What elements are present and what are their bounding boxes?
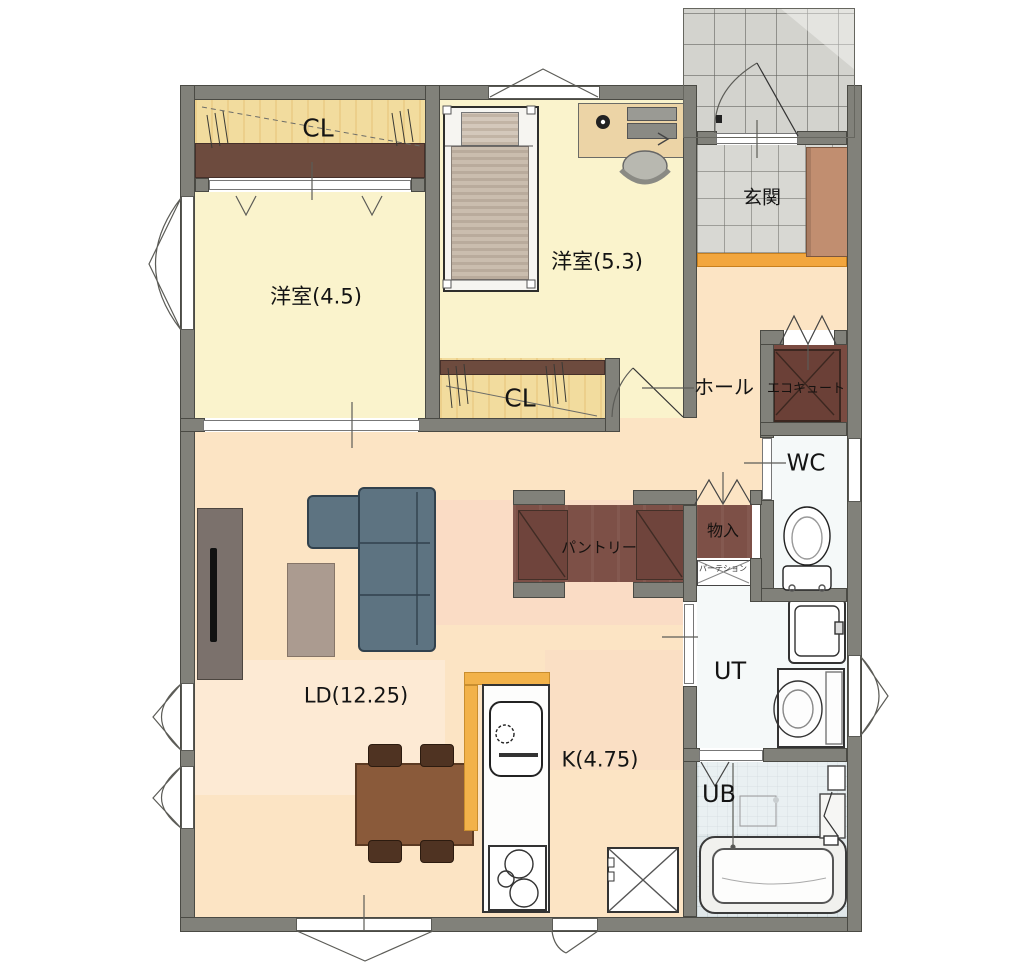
room-label-wc: WC [787,453,826,476]
room-label-storage: 物入 [707,523,739,539]
wall-bedroom-divider [425,85,440,432]
wall-ecocute-top-b [834,330,847,345]
hall-floor2 [697,330,763,418]
window-ld-bottom-swing [297,931,433,961]
window-wc-right [848,438,861,502]
window-ut-swing [861,657,888,735]
window-kitchen-bottom [552,918,598,931]
desk-keyboard [627,123,677,139]
room-label-ld: LD(12.25) [304,686,408,707]
wall-bedrooms-bottom-b [418,418,620,432]
room-label-entrance: 玄関 [743,189,781,208]
label-partition: パーテション [699,565,747,573]
room-label-bedroom53: 洋室(5.3) [551,252,643,273]
room-label-closet2: CL [504,386,535,411]
entrance-door-panel [716,133,798,144]
window-ld-bottom [296,918,432,931]
wall-pantry-bottom-a [513,582,565,598]
washbasin [788,598,846,664]
wall-ecocute-left-b [760,500,774,595]
dining-chair-3 [368,840,402,863]
coffee-table [287,563,335,657]
window-ld2-swing [153,767,181,828]
sliding-door-closet1 [209,180,411,190]
sliding-door-wc [762,438,772,500]
sliding-door-bedroom45 [203,420,420,431]
window-ld1-swing [153,684,181,750]
dining-chair-1 [368,744,402,767]
wall-bedrooms-bottom-a [180,418,205,432]
window-ld-left-2 [181,766,194,829]
room-label-closet1: CL [302,116,333,141]
wall-pantry-bottom-b [633,582,688,598]
tv-board [197,508,243,680]
wall-genkan-top-a [697,131,717,145]
window-kitchen-swing [552,931,598,953]
wall-ut-ub-b [763,748,847,762]
sliding-door-kitchen-ut [684,604,694,684]
bed-pillow [461,112,519,146]
wall-right [847,85,862,932]
pantry-shelf-right [636,510,685,580]
window-bedroom45-left [181,196,194,330]
shoe-cabinet [806,147,848,257]
wall-kitchen-ut-a [683,505,697,602]
wall-storage-top-stub [750,490,762,505]
wall-kitchen-ut-b [683,686,697,917]
wall-ut-ub-a [683,748,700,762]
room-label-ecocute: エコキュート [767,383,845,396]
room-label-kitchen: K(4.75) [562,750,639,771]
floor-plan: CL 洋室(4.5) 洋室(5.3) CL 玄関 ホール エコキュート WC 物… [0,0,1024,973]
desk-monitor [627,107,677,121]
room-label-pantry: パントリー [561,541,637,556]
kitchen-sink [489,701,543,777]
tv [210,548,217,642]
wall-wc-ut-divider [760,588,847,602]
window-ld-left-1 [181,683,194,751]
room-label-ub: UB [702,782,736,806]
wall-genkan-top-b [797,131,847,145]
wall-ecocute-wc-divider [760,422,847,436]
hall-floor [697,267,847,330]
bathtub-inner [712,848,834,904]
wall-ecocute-top-a [760,330,784,345]
dining-table [355,763,474,846]
washing-machine [777,668,845,748]
refrigerator [607,847,679,913]
stove [488,845,547,911]
room-label-ut: UT [714,659,746,683]
closet2-pipe [440,360,605,375]
wall-cl1-bottom-a [195,178,209,192]
closet1-shelf [195,143,425,178]
window45-swing [149,198,181,330]
window-bedroom53-top [488,86,600,99]
wall-cl1-bottom-b [411,178,425,192]
wall-pantry-top-a [513,490,565,505]
wall-bottom [180,917,862,932]
dining-chair-4 [420,840,454,863]
sofa-main [358,487,436,652]
wall-partition-stub-r [750,558,762,602]
wall-genkan-left [683,85,697,418]
room-label-bedroom45: 洋室(4.5) [270,287,362,308]
wall-pantry-top-b [633,490,697,505]
bed-mattress [451,146,529,280]
wall-cl2-right-post [605,358,620,432]
dining-chair-2 [420,744,454,767]
counter-top-band-v [464,685,478,831]
window-ut-right [848,655,861,737]
room-label-hall: ホール [694,377,754,397]
folding-door-ut-ub [699,750,763,761]
